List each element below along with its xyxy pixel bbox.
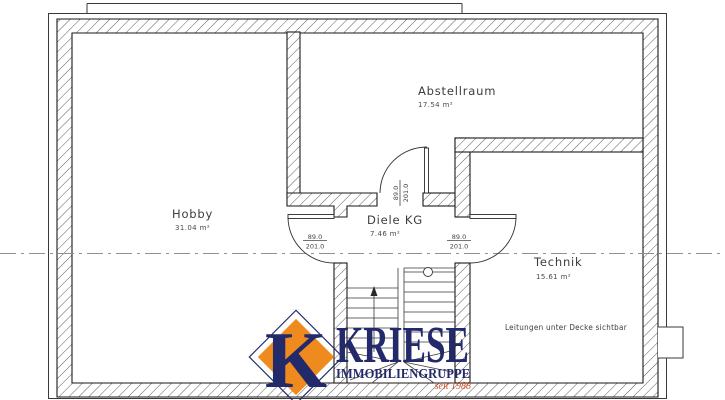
door-height: 201.0 xyxy=(402,184,410,203)
door-width: 89.0 xyxy=(452,233,466,241)
room-name: Hobby xyxy=(172,207,213,221)
room-area: 15.61 m² xyxy=(536,273,571,281)
logo-k-mark: K xyxy=(265,317,327,400)
room-area: 31.04 m² xyxy=(175,224,210,232)
room-area: 17.54 m² xyxy=(418,101,453,109)
room-name: Abstellraum xyxy=(418,84,496,98)
room-name: Technik xyxy=(533,255,583,269)
door-diele-technik xyxy=(470,215,516,264)
logo-company-name: KRIESE xyxy=(336,317,469,374)
sheet-edge-line xyxy=(87,4,462,14)
room-area: 7.46 m² xyxy=(370,230,400,238)
door-size-label-right: 89.0 201.0 xyxy=(447,233,471,251)
logo-subtitle: IMMOBILIENGRUPPE xyxy=(336,367,470,382)
door-height: 201.0 xyxy=(450,243,469,251)
wall-hobby-abstellraum xyxy=(287,32,300,196)
door-height: 201.0 xyxy=(306,243,325,251)
room-label-diele: Diele KG 7.46 m² xyxy=(367,213,423,238)
wall-diele-north-left xyxy=(287,193,377,217)
stair-newel-circle xyxy=(424,268,433,277)
door-leaf xyxy=(470,215,516,219)
floor-plan-svg: 89.0 201.0 89.0 201.0 89.0 201.0 Abstell… xyxy=(0,0,725,400)
door-size-label-vertical: 89.0 201.0 xyxy=(392,180,410,206)
door-width: 89.0 xyxy=(308,233,322,241)
light-well xyxy=(658,327,683,358)
logo-since: seit 1988 xyxy=(435,381,471,392)
room-label-hobby: Hobby 31.04 m² xyxy=(172,207,213,232)
door-width: 89.0 xyxy=(392,186,400,200)
door-leaf xyxy=(288,215,334,219)
ceiling-note: Leitungen unter Decke sichtbar xyxy=(505,323,628,332)
floor-plan-page: 89.0 201.0 89.0 201.0 89.0 201.0 Abstell… xyxy=(0,0,725,400)
door-leaf xyxy=(425,148,429,193)
room-label-technik: Technik 15.61 m² xyxy=(533,255,583,281)
room-label-abstellraum: Abstellraum 17.54 m² xyxy=(418,84,496,109)
door-size-label-left: 89.0 201.0 xyxy=(303,233,327,251)
room-name: Diele KG xyxy=(367,213,423,227)
wall-abstellraum-technik xyxy=(455,138,643,152)
